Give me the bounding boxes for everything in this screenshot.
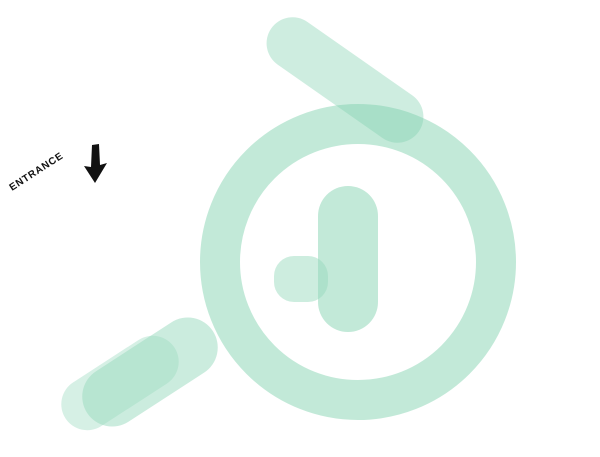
entrance-label-group: ENTRANCE [8,144,107,194]
watermark-stub [274,256,328,302]
brand-watermark [51,7,496,440]
floor-plan-image: ENTRANCE [0,0,600,457]
entrance-label: ENTRANCE [8,151,66,194]
entrance-arrow-icon [84,144,107,183]
floor-plan-svg: ENTRANCE [0,0,600,457]
watermark-bar [318,186,378,332]
